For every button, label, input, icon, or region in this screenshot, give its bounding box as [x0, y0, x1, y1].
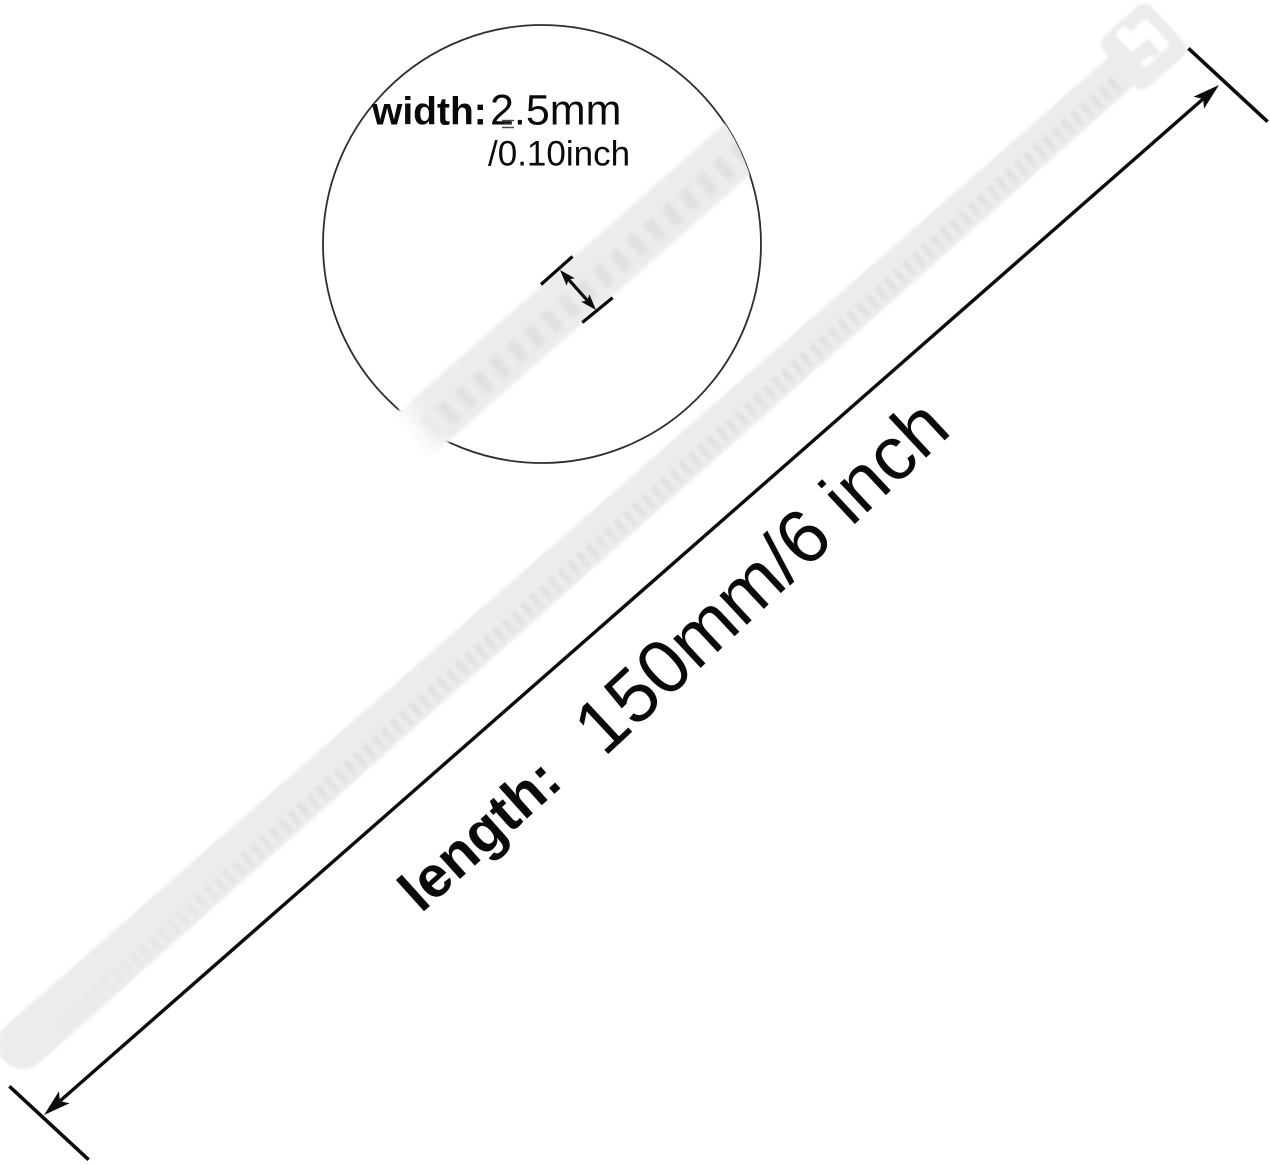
svg-text:/0.10inch: /0.10inch	[488, 135, 630, 174]
svg-text:width:: width:	[371, 91, 487, 134]
